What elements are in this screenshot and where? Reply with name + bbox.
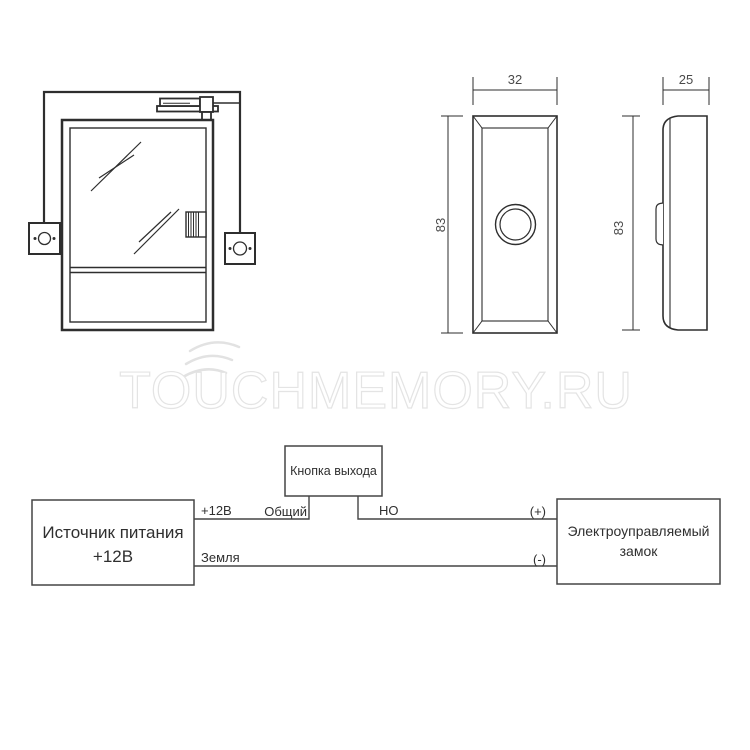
label-plus: (+): [530, 504, 546, 519]
exit-button-left: [29, 223, 60, 254]
power-supply-label-line1: Источник питания: [42, 523, 183, 542]
label-plus12v: +12В: [201, 503, 232, 518]
wires: [194, 496, 557, 566]
side-width-dimension-label: 25: [679, 72, 693, 87]
drawing-svg: 32 83 25 83: [0, 0, 750, 750]
front-height-dimension-label: 83: [433, 218, 448, 232]
watermark: TOUCHMEMORY.RU: [119, 342, 633, 420]
lock-box: Электроуправляемый замок: [557, 499, 720, 584]
door-installation-drawing: [29, 92, 255, 330]
power-supply-label-line2: +12В: [93, 547, 133, 566]
front-width-dimension-label: 32: [508, 72, 522, 87]
power-supply-box: Источник питания +12В: [32, 500, 194, 585]
exit-button-right: [225, 233, 255, 264]
button-circle-inner: [500, 209, 531, 240]
exit-button-box: Кнопка выхода: [285, 446, 382, 496]
side-button-protrusion: [656, 203, 663, 245]
button-circle-outer: [496, 205, 536, 245]
exit-button-box-label: Кнопка выхода: [290, 464, 377, 478]
label-normally-open: НО: [379, 503, 399, 518]
exit-button-front-view: 32 83: [433, 72, 557, 333]
exit-button-side-view: 25 83: [611, 72, 709, 330]
lock-label-line1: Электроуправляемый: [568, 523, 710, 539]
watermark-text: TOUCHMEMORY.RU: [119, 362, 633, 420]
label-ground: Земля: [201, 550, 240, 565]
side-height-dimension-label: 83: [611, 221, 626, 235]
wiring-diagram: Кнопка выхода Источник питания +12В Элек…: [32, 446, 720, 585]
glass-reflection-lines: [91, 142, 179, 254]
label-common: Общий: [264, 504, 307, 519]
door-strike-block: [186, 212, 206, 237]
lock-label-line2: замок: [620, 543, 659, 559]
electromagnetic-lock: [157, 97, 218, 120]
label-minus: (-): [533, 552, 546, 567]
technical-drawing-page: 32 83 25 83: [0, 0, 750, 750]
